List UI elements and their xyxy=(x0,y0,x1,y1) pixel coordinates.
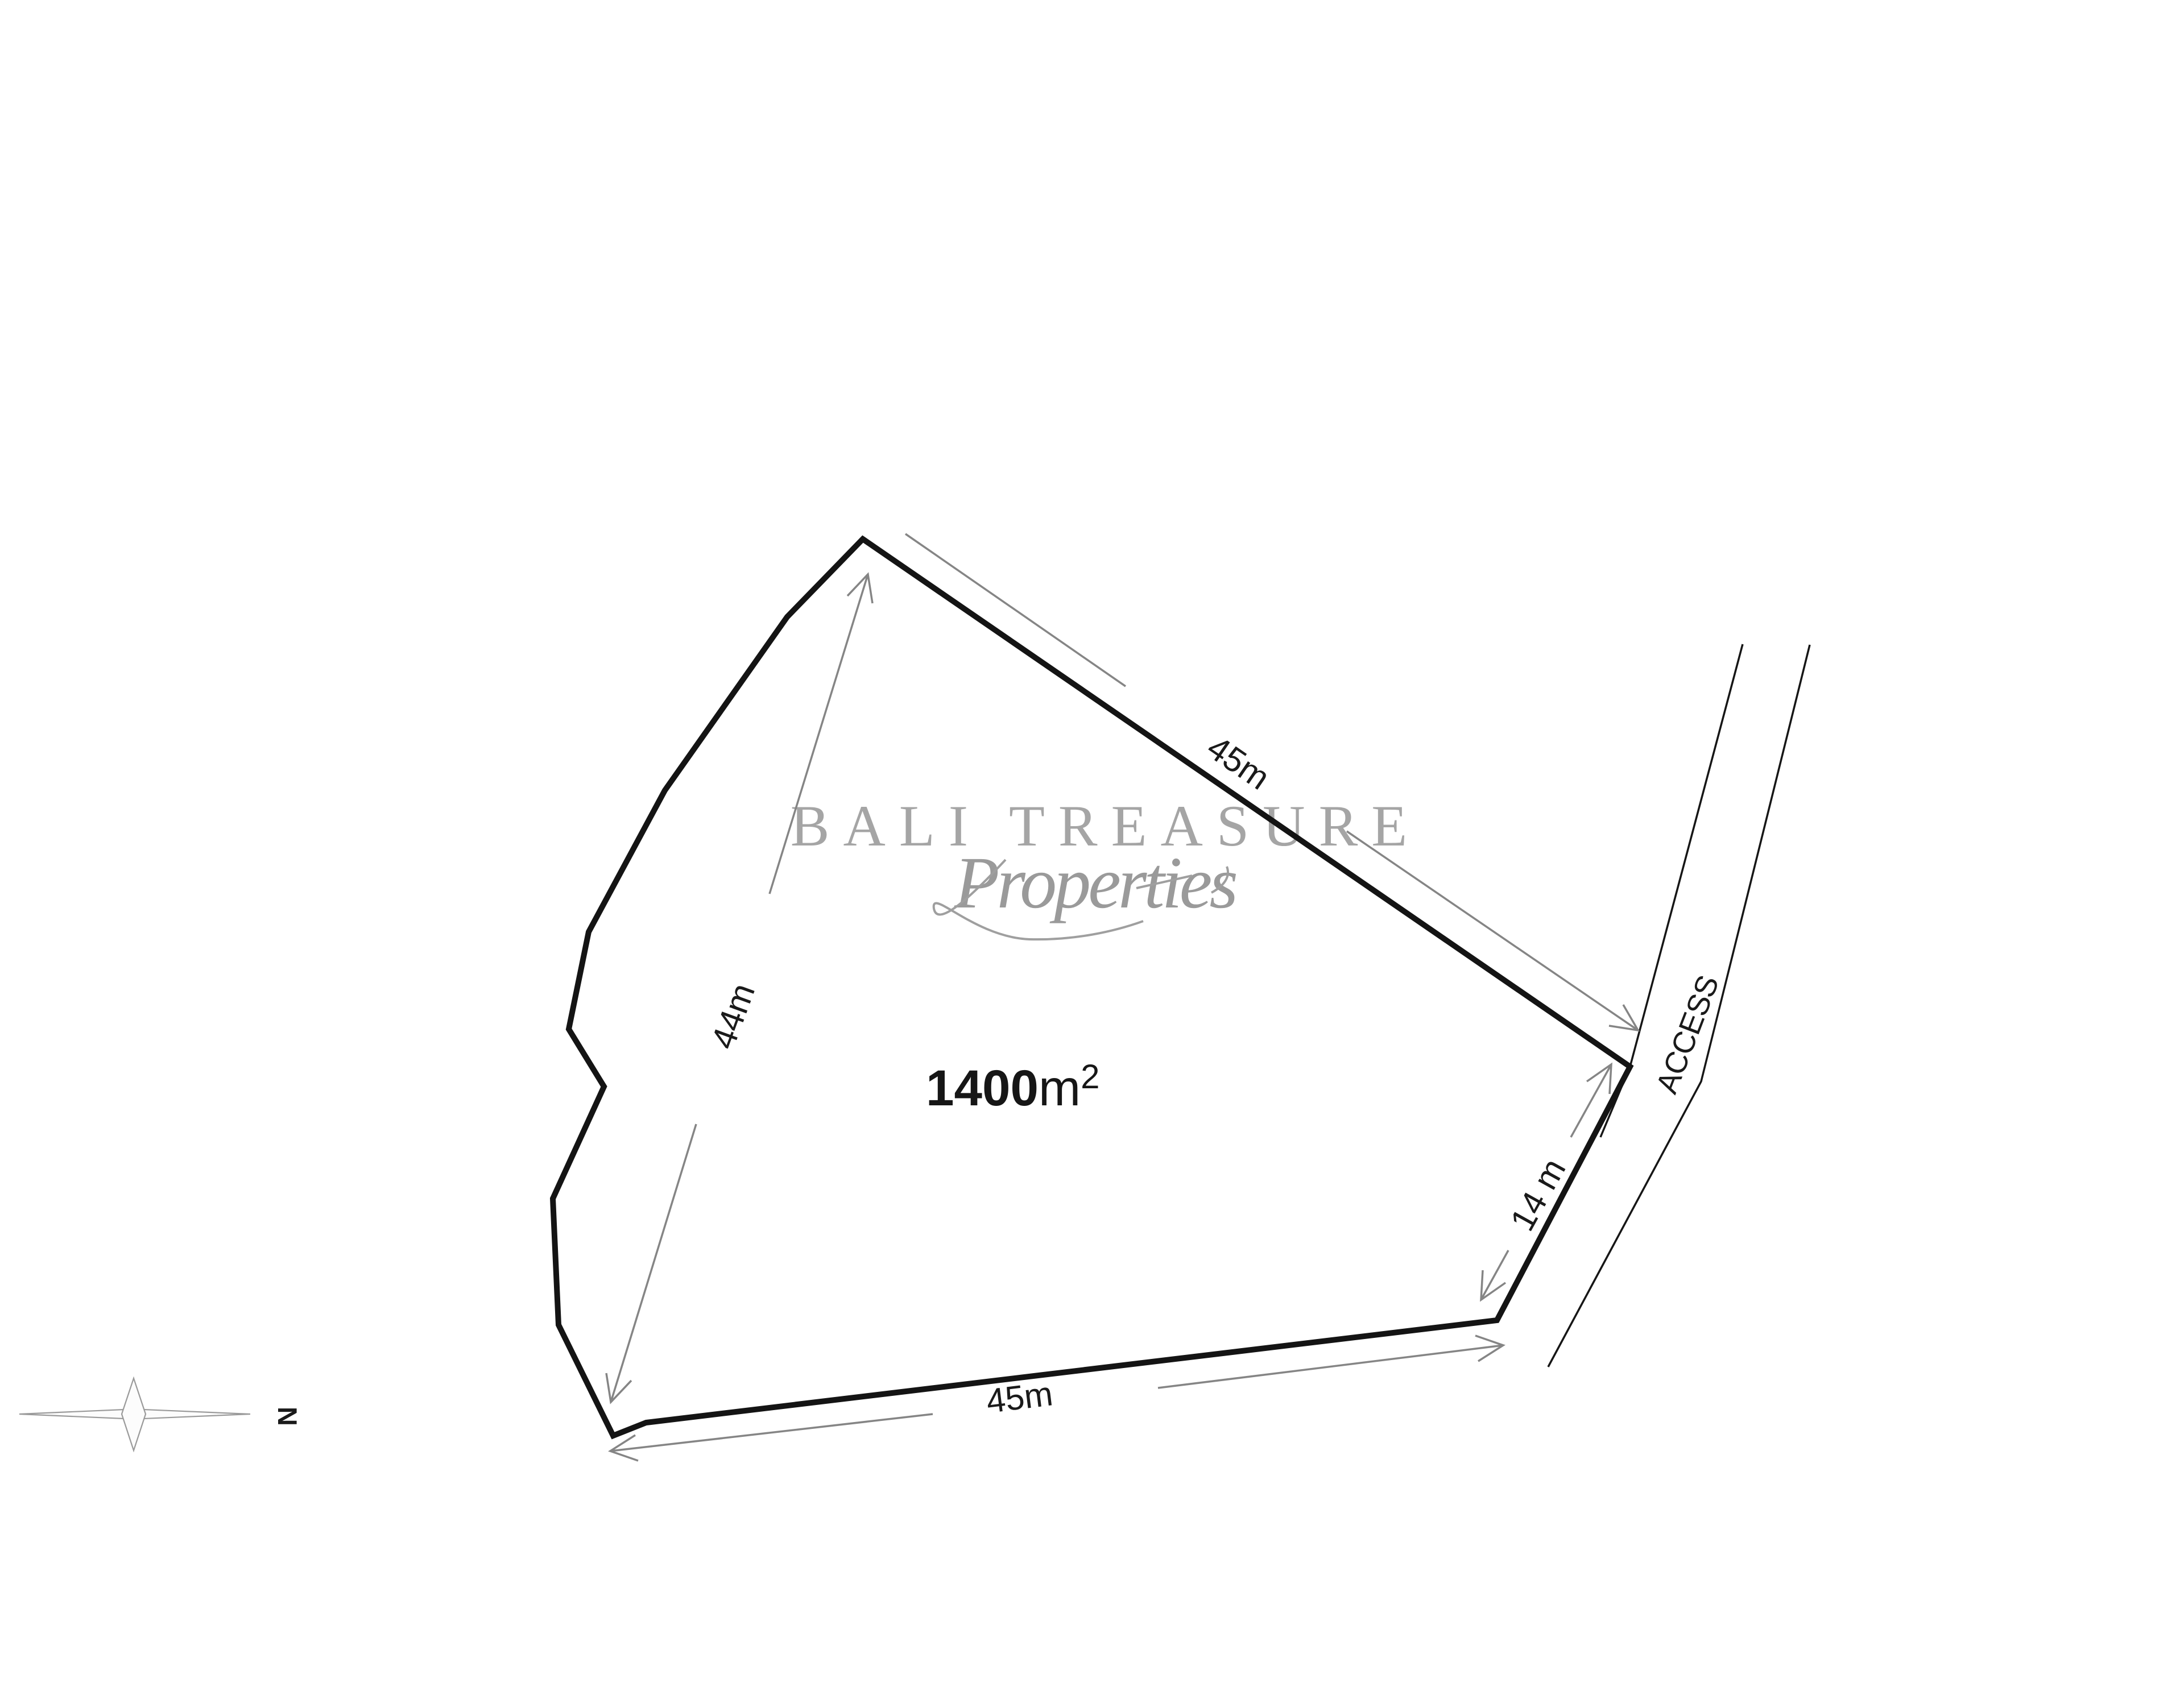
svg-text:1400m2: 1400m2 xyxy=(926,1058,1100,1116)
svg-text:Properties: Properties xyxy=(954,842,1236,924)
svg-text:45m: 45m xyxy=(984,1374,1054,1420)
svg-text:N: N xyxy=(272,1407,303,1426)
